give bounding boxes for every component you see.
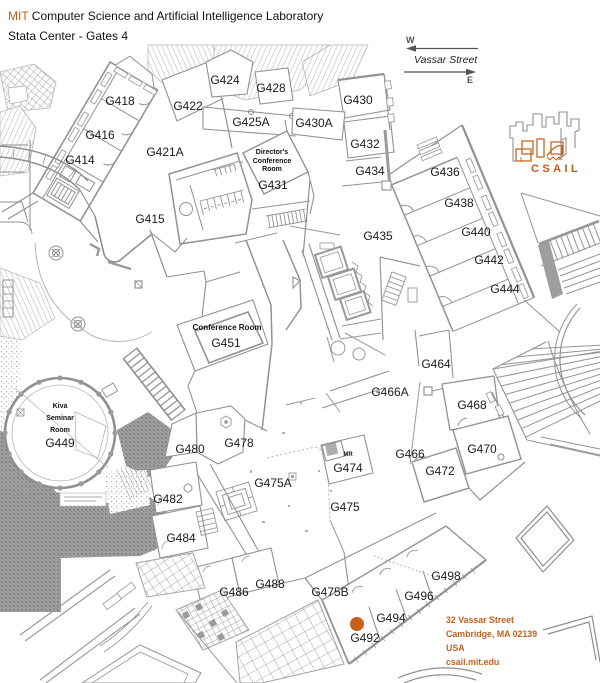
svg-text:G414: G414 — [65, 153, 95, 167]
svg-text:MR: MR — [343, 452, 353, 458]
svg-text:G475A: G475A — [254, 476, 291, 490]
svg-text:G488: G488 — [255, 577, 285, 591]
svg-text:Director's: Director's — [256, 149, 289, 156]
svg-text:Conference Room: Conference Room — [193, 323, 262, 332]
svg-text:G440: G440 — [461, 225, 491, 239]
svg-text:G494: G494 — [376, 611, 406, 625]
svg-text:E: E — [467, 75, 473, 85]
svg-text:G416: G416 — [85, 128, 115, 142]
svg-text:G472: G472 — [425, 464, 455, 478]
svg-text:G421A: G421A — [146, 145, 183, 159]
svg-text:Seminar: Seminar — [46, 415, 74, 422]
svg-text:csail.mit.edu: csail.mit.edu — [446, 657, 499, 667]
svg-text:G435: G435 — [363, 229, 393, 243]
svg-text:G425A: G425A — [232, 115, 269, 129]
svg-text:MIT Computer Science and Artif: MIT Computer Science and Artificial Inte… — [8, 9, 323, 23]
svg-text:G438: G438 — [444, 196, 474, 210]
svg-text:Cambridge, MA 02139: Cambridge, MA 02139 — [446, 629, 537, 639]
svg-text:G434: G434 — [355, 164, 385, 178]
svg-text:G468: G468 — [457, 398, 487, 412]
svg-text:G474: G474 — [333, 461, 363, 475]
svg-text:G422: G422 — [173, 99, 203, 113]
svg-text:Kiva: Kiva — [53, 403, 68, 410]
svg-text:G449: G449 — [45, 436, 75, 450]
svg-text:Room: Room — [50, 427, 70, 434]
svg-text:32 Vassar Street: 32 Vassar Street — [446, 615, 514, 625]
svg-text:G428: G428 — [256, 81, 286, 95]
svg-text:G475: G475 — [330, 500, 360, 514]
svg-text:G470: G470 — [467, 442, 497, 456]
svg-text:G444: G444 — [490, 282, 520, 296]
svg-text:G496: G496 — [404, 589, 434, 603]
svg-text:W: W — [406, 35, 415, 45]
svg-text:G432: G432 — [350, 137, 380, 151]
svg-text:G466: G466 — [395, 447, 425, 461]
svg-text:G431: G431 — [258, 178, 288, 192]
svg-text:G466A: G466A — [371, 385, 408, 399]
svg-text:G478: G478 — [224, 436, 254, 450]
svg-text:G451: G451 — [211, 336, 241, 350]
svg-text:USA: USA — [446, 643, 465, 653]
svg-text:Room: Room — [262, 166, 282, 173]
svg-text:G492: G492 — [350, 631, 380, 645]
svg-text:G415: G415 — [135, 212, 165, 226]
svg-text:G436: G436 — [430, 165, 460, 179]
svg-text:Vassar Street: Vassar Street — [414, 54, 478, 66]
svg-text:CSAIL: CSAIL — [531, 163, 581, 175]
svg-text:G475B: G475B — [311, 585, 348, 599]
svg-text:G484: G484 — [166, 531, 196, 545]
svg-text:G482: G482 — [153, 492, 183, 506]
svg-text:G424: G424 — [210, 73, 240, 87]
svg-text:G430A: G430A — [295, 116, 332, 130]
svg-text:G464: G464 — [421, 357, 451, 371]
svg-text:G430: G430 — [343, 93, 373, 107]
svg-text:G498: G498 — [431, 569, 461, 583]
svg-text:G486: G486 — [219, 585, 249, 599]
svg-text:Conference: Conference — [253, 158, 292, 165]
svg-text:Stata Center - Gates 4: Stata Center - Gates 4 — [8, 29, 128, 43]
svg-text:G480: G480 — [175, 442, 205, 456]
svg-text:G442: G442 — [474, 253, 504, 267]
svg-text:G418: G418 — [105, 94, 135, 108]
